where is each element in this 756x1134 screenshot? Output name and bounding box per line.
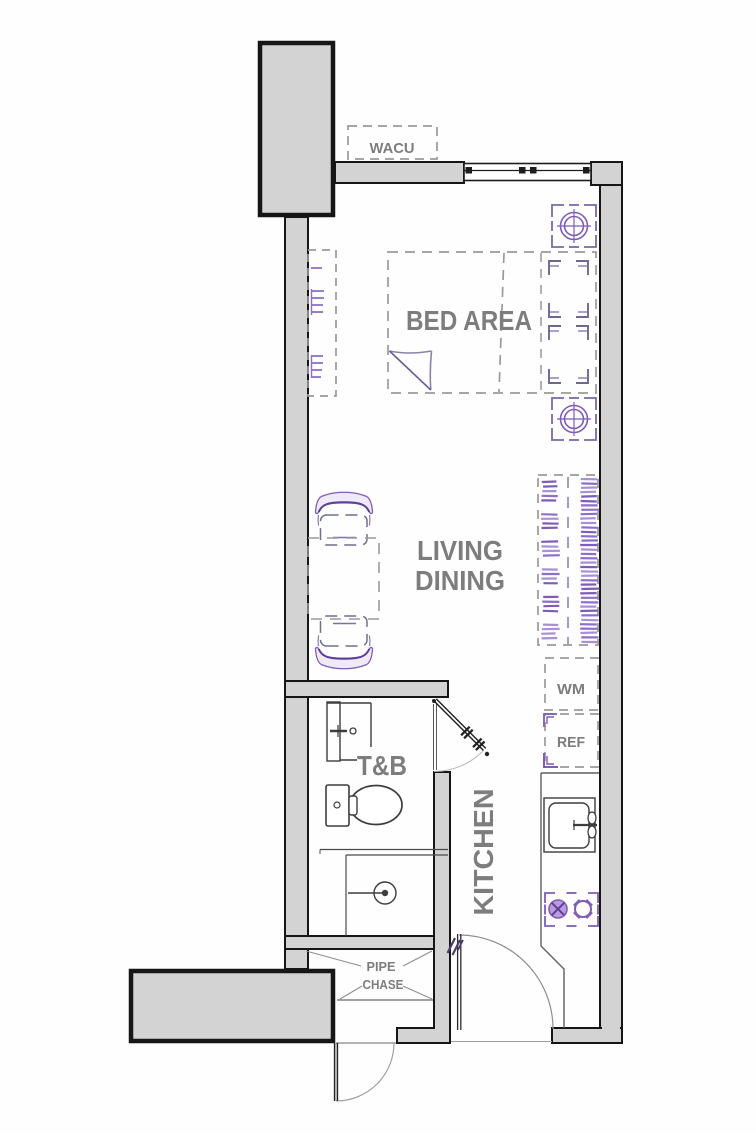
svg-text:BED AREA: BED AREA bbox=[406, 305, 532, 336]
svg-text:WM: WM bbox=[557, 681, 585, 698]
svg-text:WACU: WACU bbox=[370, 140, 415, 157]
svg-text:REF: REF bbox=[557, 734, 585, 751]
svg-text:PIPE: PIPE bbox=[367, 959, 396, 974]
svg-text:CHASE: CHASE bbox=[363, 977, 404, 992]
svg-text:DINING: DINING bbox=[415, 565, 505, 596]
svg-text:LIVING: LIVING bbox=[417, 535, 503, 566]
svg-text:T&B: T&B bbox=[357, 750, 407, 781]
svg-text:KITCHEN: KITCHEN bbox=[468, 789, 499, 916]
